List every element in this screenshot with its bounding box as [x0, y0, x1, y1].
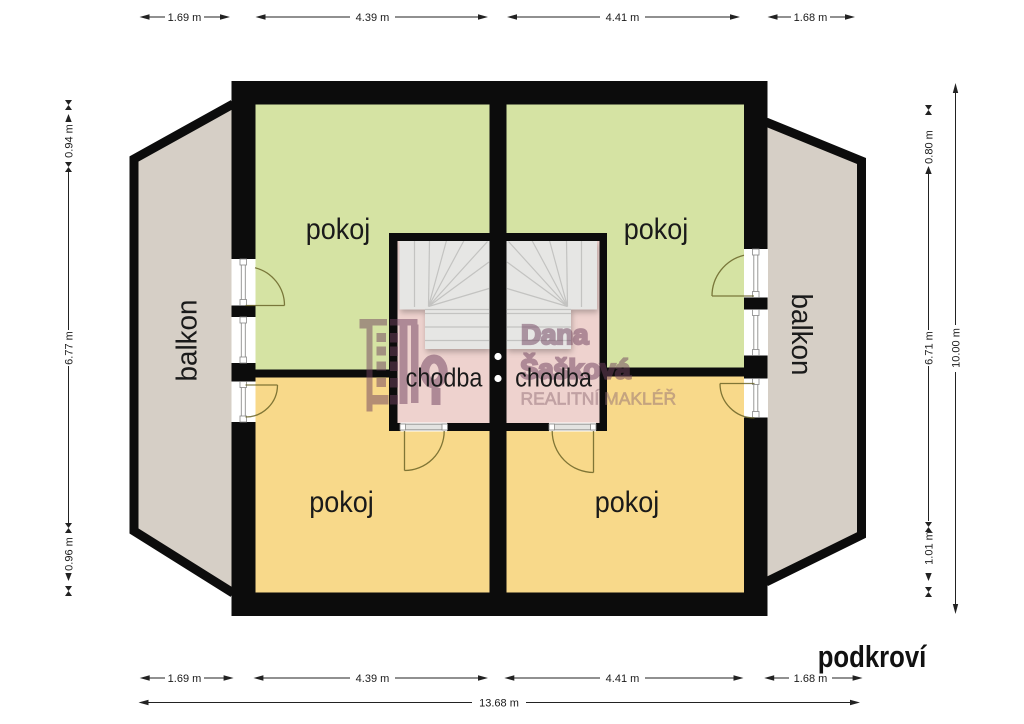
svg-text:4.39 m: 4.39 m [356, 12, 390, 24]
svg-text:4.39 m: 4.39 m [356, 673, 390, 685]
svg-text:chodba: chodba [406, 364, 483, 392]
svg-text:1.68 m: 1.68 m [794, 12, 828, 24]
svg-text:1.01 m: 1.01 m [923, 531, 935, 565]
svg-text:4.41 m: 4.41 m [606, 673, 640, 685]
svg-text:pokoj: pokoj [306, 213, 370, 247]
svg-text:6.77 m: 6.77 m [63, 331, 75, 365]
svg-text:13.68 m: 13.68 m [479, 697, 519, 709]
svg-text:0.96 m: 0.96 m [63, 537, 75, 571]
svg-text:1.68 m: 1.68 m [794, 673, 828, 685]
svg-text:pokoj: pokoj [595, 486, 659, 520]
svg-text:balkon: balkon [785, 294, 818, 376]
svg-text:10.00 m: 10.00 m [950, 328, 962, 368]
svg-text:6.71 m: 6.71 m [923, 331, 935, 365]
svg-text:0.80 m: 0.80 m [923, 130, 935, 164]
svg-text:4.41 m: 4.41 m [606, 12, 640, 24]
svg-text:1.69 m: 1.69 m [168, 12, 202, 24]
svg-text:podkroví: podkroví [818, 640, 928, 675]
svg-text:Dana: Dana [521, 319, 589, 350]
svg-text:0.94 m: 0.94 m [63, 124, 75, 158]
svg-text:pokoj: pokoj [624, 213, 688, 247]
svg-text:chodba: chodba [515, 364, 592, 392]
svg-text:1.69 m: 1.69 m [168, 673, 202, 685]
svg-text:balkon: balkon [171, 300, 204, 382]
svg-text:pokoj: pokoj [309, 486, 373, 520]
